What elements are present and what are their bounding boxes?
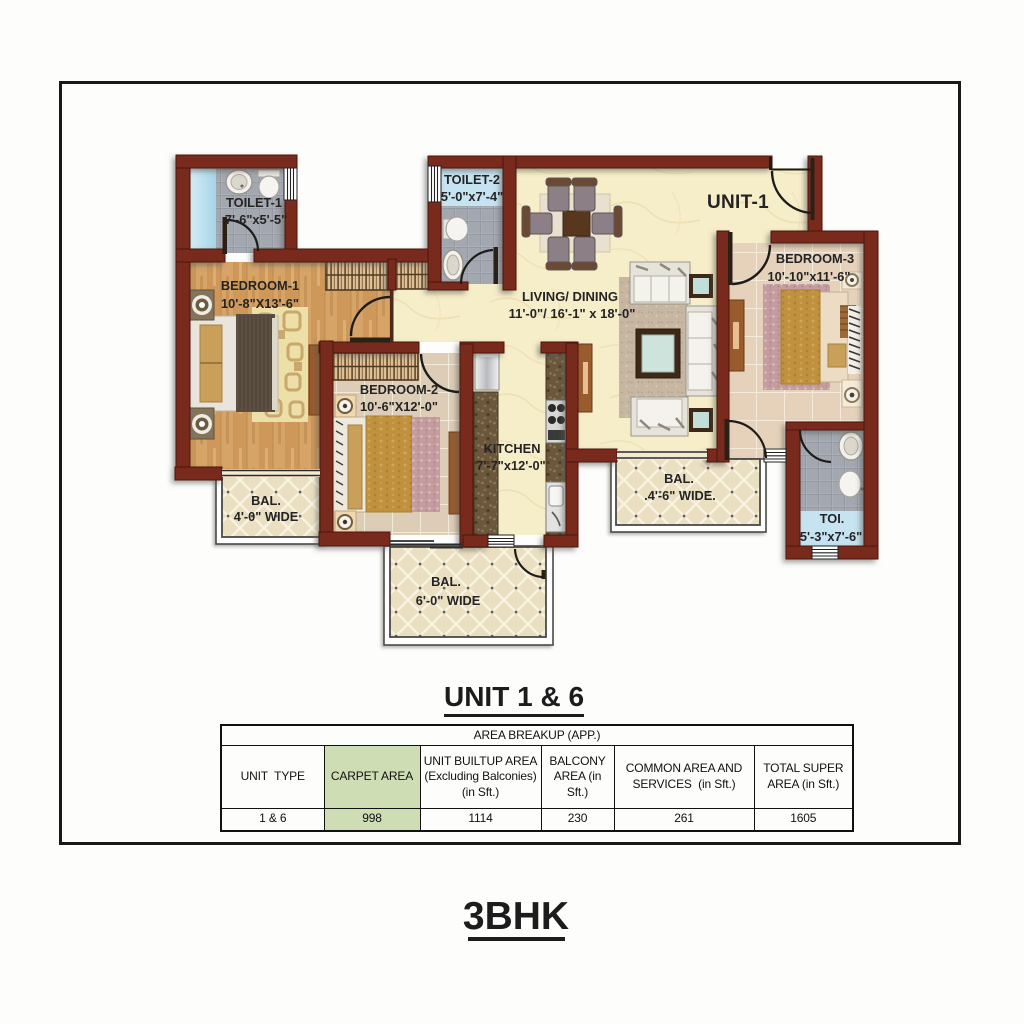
svg-text:TOILET-1: TOILET-1 [226,195,282,210]
svg-text:BAL.: BAL. [251,493,281,508]
svg-text:6'-0" WIDE: 6'-0" WIDE [416,593,481,608]
svg-text:KITCHEN: KITCHEN [484,441,541,456]
svg-text:10'-10"x11'-6": 10'-10"x11'-6" [768,269,851,284]
svg-text:BEDROOM-3: BEDROOM-3 [776,251,854,266]
svg-text:BAL.: BAL. [431,574,461,589]
svg-text:7'-6"x5'-5": 7'-6"x5'-5" [225,212,287,227]
svg-text:TOI.: TOI. [820,511,845,526]
svg-text:UNIT-1: UNIT-1 [707,192,769,213]
svg-text:4'-0" WIDE: 4'-0" WIDE [234,509,299,524]
svg-text:5'-0"x7'-4": 5'-0"x7'-4" [441,189,503,204]
svg-text:10'-8"X13'-6": 10'-8"X13'-6" [221,296,299,311]
svg-text:BEDROOM-1: BEDROOM-1 [221,278,299,293]
svg-text:11'-0"/ 16'-1" x 18'-0": 11'-0"/ 16'-1" x 18'-0" [509,306,636,321]
svg-text:5'-3"x7'-6": 5'-3"x7'-6" [800,529,862,544]
svg-text:BEDROOM-2: BEDROOM-2 [360,382,438,397]
svg-text:TOILET-2: TOILET-2 [444,172,500,187]
svg-text:LIVING/ DINING: LIVING/ DINING [522,289,618,304]
svg-text:.4'-6" WIDE.: .4'-6" WIDE. [644,488,716,503]
svg-text:BAL.: BAL. [664,471,694,486]
svg-text:10'-6"X12'-0": 10'-6"X12'-0" [360,399,438,414]
svg-text:7'-7"x12'-0": 7'-7"x12'-0" [476,458,545,473]
